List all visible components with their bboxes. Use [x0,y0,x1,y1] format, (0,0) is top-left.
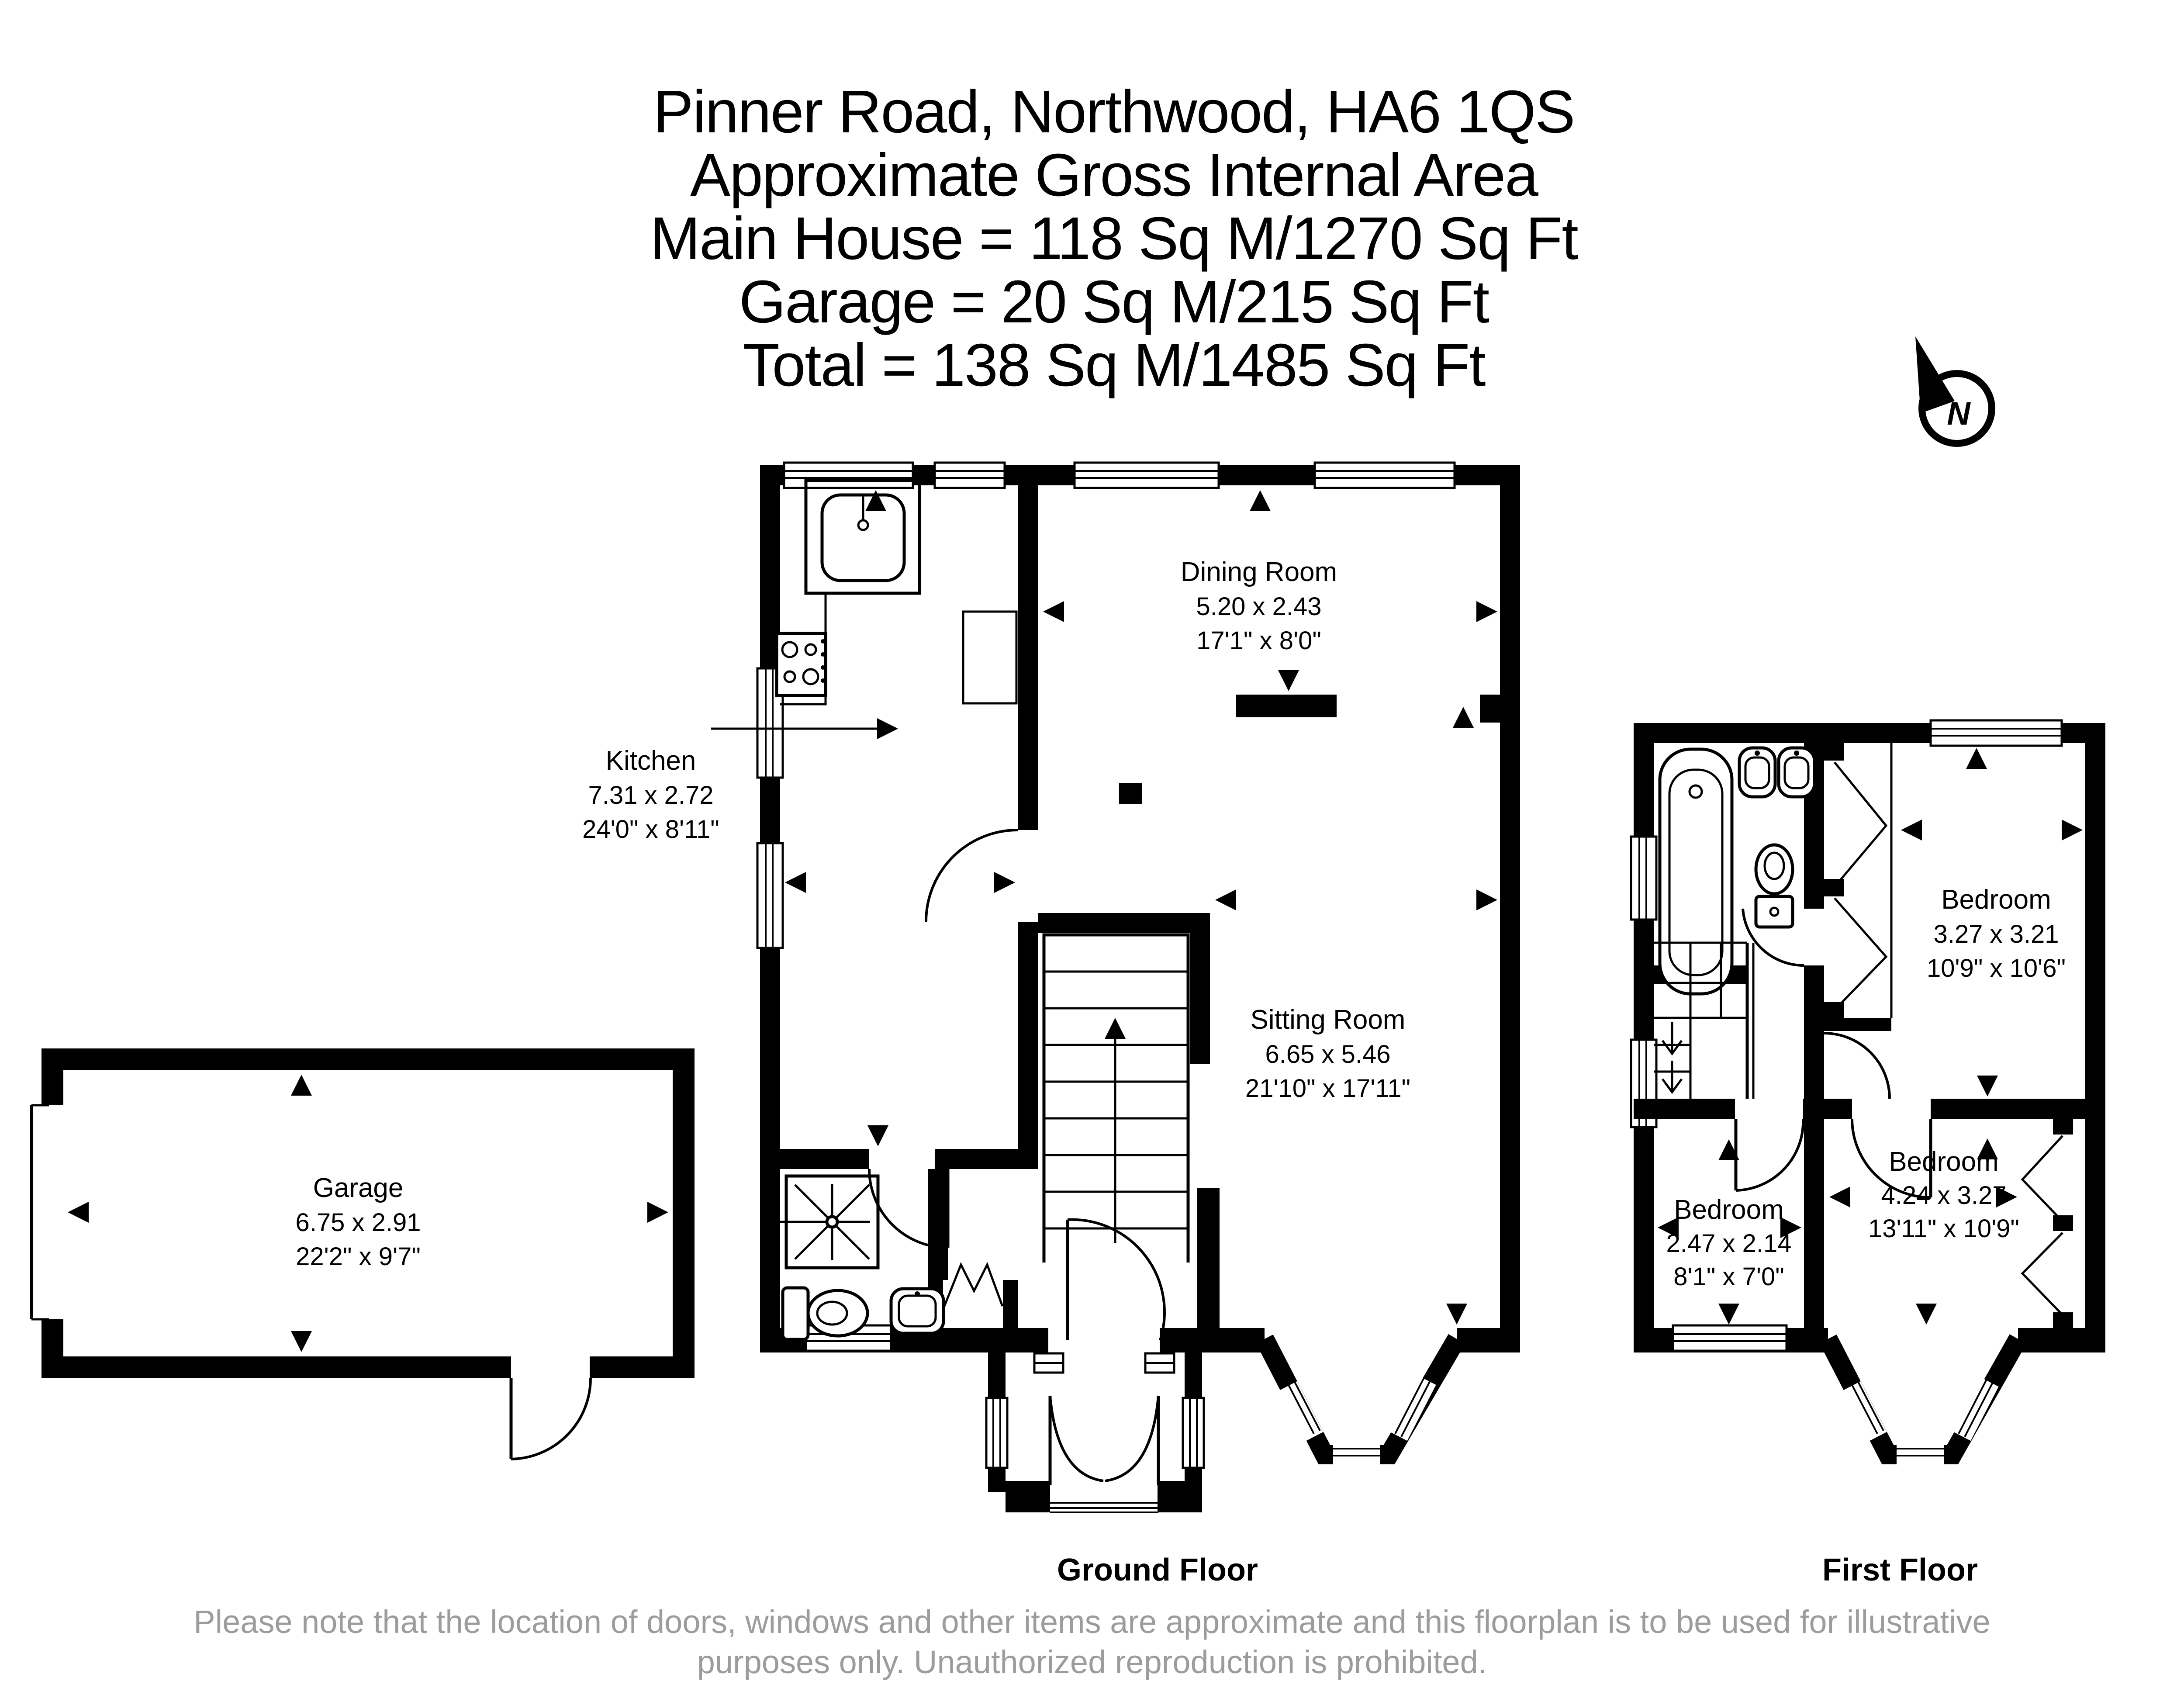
dimension-arrow [1250,490,1271,511]
window [986,1398,1007,1468]
sitting-room-metric: 6.65 x 5.46 [1265,1040,1391,1069]
ground-floor-label: Ground Floor [1057,1553,1258,1588]
dimension-arrow [291,1331,312,1352]
north-compass-icon: N [1915,336,1992,443]
dimension-arrow [647,1202,668,1223]
kitchen-imperial: 24'0" x 8'11" [582,815,719,844]
bedroom-small-imperial: 8'1" x 7'0" [1673,1263,1784,1291]
bedroom-front-metric: 3.27 x 3.21 [1934,920,2059,948]
bay-window [1265,1339,1457,1456]
sitting-room-label: Sitting Room [1251,1005,1406,1035]
dimension-arrow [1718,1304,1739,1325]
dimension-arrow [1446,1304,1467,1325]
garage-side-door [511,1378,591,1459]
wardrobe-icon [2022,1119,2073,1328]
door-arc [1736,1119,1803,1190]
window [1145,1353,1174,1373]
dimension-arrow [1476,889,1497,910]
title-total: Total = 138 Sq M/1485 Sq Ft [743,332,1486,399]
kitchen-label: Kitchen [606,746,696,776]
dimension-arrow [68,1202,89,1223]
stairs-icon [1044,935,1188,1263]
cloaks-hooks-icon [944,1265,1002,1306]
disclaimer-line1: Please note that the location of doors, … [194,1604,1990,1640]
dimension-arrow [1453,707,1474,728]
window [1673,1325,1787,1351]
title-address: Pinner Road, Northwood, HA6 1QS [653,78,1575,145]
disclaimer-line2: purposes only. Unauthorized reproduction… [697,1644,1487,1680]
dining-room-imperial: 17'1" x 8'0" [1196,626,1321,655]
shower-icon [780,1176,878,1268]
garage-door-icon [31,1105,49,1319]
window [1034,1353,1063,1373]
floorplan-page: Pinner Road, Northwood, HA6 1QS Approxim… [0,0,2184,1688]
dimension-arrow [1977,1076,1998,1097]
kitchen-unit [963,612,1016,703]
dimension-arrow [1966,748,1987,769]
bathroom-sink-icon [1779,748,1814,797]
dimension-arrow [291,1075,312,1096]
double-door-arcs [1050,1396,1158,1485]
dimension-arrow [1043,601,1064,622]
stove-icon [777,633,826,695]
bedroom-rear-label: Bedroom [1889,1147,1999,1177]
dining-room-metric: 5.20 x 2.43 [1196,592,1322,621]
kitchen-pointer [711,718,898,739]
kitchen-sink-icon [806,481,919,593]
window [935,463,1005,488]
window [1183,1398,1204,1468]
first-floor-plan: Bedroom 3.27 x 3.21 10'9" x 10'6" Bedroo… [1631,720,2105,1456]
bedroom-small-label: Bedroom [1674,1195,1784,1225]
dimension-arrow [1901,820,1922,841]
door-arc [1824,1033,1890,1099]
title-garage: Garage = 20 Sq M/215 Sq Ft [739,268,1489,336]
window [1931,720,2062,746]
window [757,843,783,948]
garage-metric: 6.75 x 2.91 [296,1208,421,1237]
window [1315,463,1455,488]
title-subtitle: Approximate Gross Internal Area [690,142,1538,209]
ground-floor-plan: Kitchen 7.31 x 2.72 24'0" x 8'11" Dining… [582,463,1520,1512]
wardrobe-icon [1824,743,1891,1018]
dining-room-label: Dining Room [1181,557,1337,587]
door-arc [926,830,1018,922]
dimension-arrow [1476,601,1497,622]
disclaimer: Please note that the location of doors, … [194,1604,1990,1680]
dimension-arrow [1916,1304,1937,1325]
window [784,463,913,488]
bedroom-front-label: Bedroom [1941,885,2051,915]
dimension-arrow [1215,889,1236,910]
window [1075,463,1219,488]
dimension-arrow [785,872,806,893]
dimension-arrow [1278,670,1299,691]
window [1631,837,1656,920]
garage-label: Garage [313,1173,404,1203]
basin-icon [891,1289,943,1333]
compass-label: N [1947,395,1971,432]
title-main-house: Main House = 118 Sq M/1270 Sq Ft [650,205,1578,272]
sitting-room-imperial: 21'10" x 17'11" [1245,1074,1410,1103]
floorplan-svg: Pinner Road, Northwood, HA6 1QS Approxim… [0,0,2184,1688]
bay-window [1828,1339,2018,1456]
bathroom-sink-icon [1739,748,1775,797]
dimension-arrow [867,1125,888,1146]
porch [986,1352,1204,1512]
bedroom-rear-metric: 4.24 x 3.27 [1881,1181,2007,1210]
kitchen-metric: 7.31 x 2.72 [588,781,714,809]
bedroom-front-imperial: 10'9" x 10'6" [1927,954,2066,982]
bedroom-small-metric: 2.47 x 2.14 [1666,1229,1792,1258]
dimension-arrow [1829,1186,1850,1207]
bedroom-rear-imperial: 13'11" x 10'9" [1868,1214,2019,1243]
toilet-icon [1756,845,1793,927]
garage-imperial: 22'2" x 9'7" [296,1242,421,1271]
first-floor-label: First Floor [1822,1553,1978,1588]
dimension-arrow [2062,820,2083,841]
dimension-arrow [994,872,1015,893]
toilet-icon [783,1288,867,1339]
garage-plan: Garage 6.75 x 2.91 22'2" x 9'7" [31,1048,695,1459]
title-block: Pinner Road, Northwood, HA6 1QS Approxim… [650,78,1578,399]
